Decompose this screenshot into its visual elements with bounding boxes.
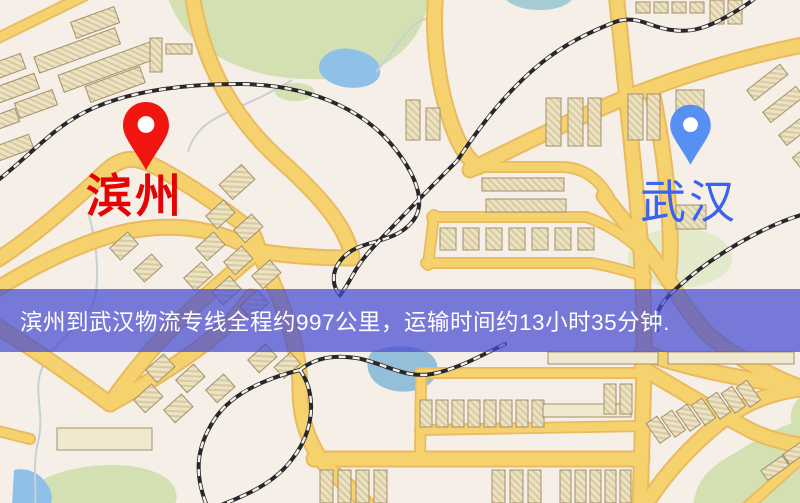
origin-pin-icon[interactable] [116, 100, 176, 176]
route-info-banner: 滨州到武汉物流专线全程约997公里，运输时间约13小时35分钟. [0, 289, 800, 352]
origin-city-label: 滨州 [86, 174, 184, 220]
destination-city-label: 武汉 [640, 180, 738, 226]
origin-pin-hole [138, 116, 155, 133]
route-info-text: 滨州到武汉物流专线全程约997公里，运输时间约13小时35分钟. [0, 305, 670, 337]
map-canvas: 滨州到武汉物流专线全程约997公里，运输时间约13小时35分钟. 滨州 武汉 [0, 0, 800, 503]
map-background [0, 0, 800, 503]
destination-pin-icon[interactable] [664, 103, 717, 170]
destination-pin-hole [683, 117, 698, 132]
